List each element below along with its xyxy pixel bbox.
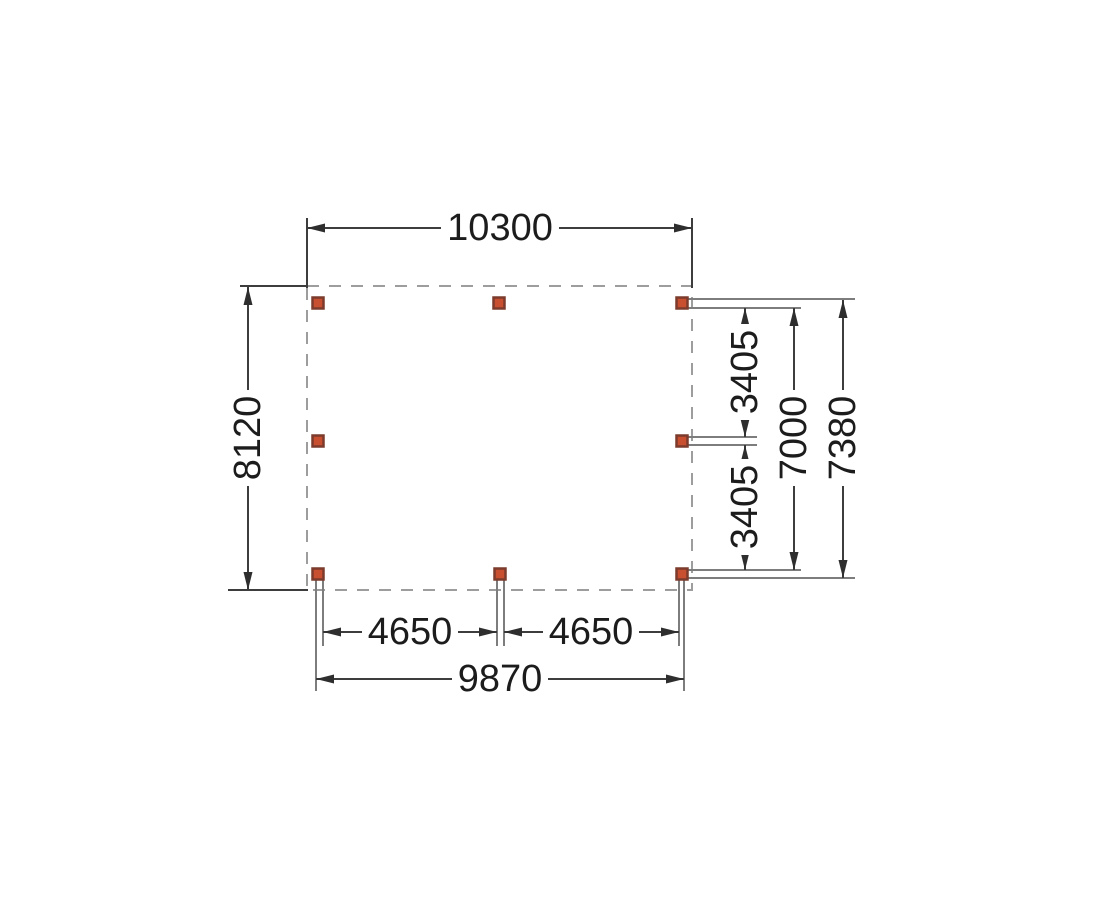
post-marker <box>494 298 505 309</box>
dimension-width-total: 10300 <box>307 207 692 249</box>
dim-label-bay-upper-right: 3405 <box>724 330 766 415</box>
dimension-depth-posts: 7000 <box>773 308 815 570</box>
canopy-outline <box>307 286 692 590</box>
post-marker <box>313 569 324 580</box>
dim-label-bay-lower-right: 3405 <box>724 465 766 550</box>
post-marker <box>677 436 688 447</box>
post-markers <box>313 298 688 580</box>
dim-label-depth-total: 8120 <box>227 396 269 481</box>
arrowhead <box>790 308 799 326</box>
dimension-width-posts: 9870 <box>316 658 684 700</box>
arrowhead <box>790 552 799 570</box>
arrowhead <box>666 675 684 684</box>
arrowhead <box>316 675 334 684</box>
arrowhead <box>323 628 341 637</box>
dimension-bay-bottom-left: 4650 <box>323 611 497 653</box>
post-marker <box>313 436 324 447</box>
dim-label-width-posts: 9870 <box>458 658 543 700</box>
arrowhead <box>479 628 497 637</box>
post-marker <box>495 569 506 580</box>
dimension-depth-total: 8120 <box>227 287 269 590</box>
arrowhead <box>307 224 325 233</box>
dimension-depth-overall-right: 7380 <box>822 300 864 578</box>
dim-label-depth-posts: 7000 <box>773 396 815 481</box>
arrowhead <box>741 308 750 326</box>
drawing-canvas: 10300 8120 3405 3405 <box>0 0 1095 913</box>
dimension-bay-upper-right: 3405 <box>724 308 766 437</box>
arrowhead <box>244 572 253 590</box>
dimension-extension-lines <box>228 218 692 590</box>
dimension-bay-bottom-right: 4650 <box>504 611 679 653</box>
dimension-bay-lower-right: 3405 <box>724 445 766 570</box>
dim-label-width-total: 10300 <box>447 207 553 249</box>
dim-label-bay-bottom-right: 4650 <box>549 611 634 653</box>
arrowhead <box>839 300 848 318</box>
arrowhead <box>674 224 692 233</box>
arrowhead <box>839 560 848 578</box>
post-marker <box>677 569 688 580</box>
arrowhead <box>504 628 522 637</box>
dim-label-bay-bottom-left: 4650 <box>368 611 453 653</box>
post-marker <box>677 298 688 309</box>
arrowhead <box>741 419 750 437</box>
arrowhead <box>244 287 253 305</box>
floor-plan-drawing: 10300 8120 3405 3405 <box>0 0 1095 913</box>
post-marker <box>313 298 324 309</box>
dim-label-depth-overall-right: 7380 <box>822 396 864 481</box>
arrowhead <box>661 628 679 637</box>
